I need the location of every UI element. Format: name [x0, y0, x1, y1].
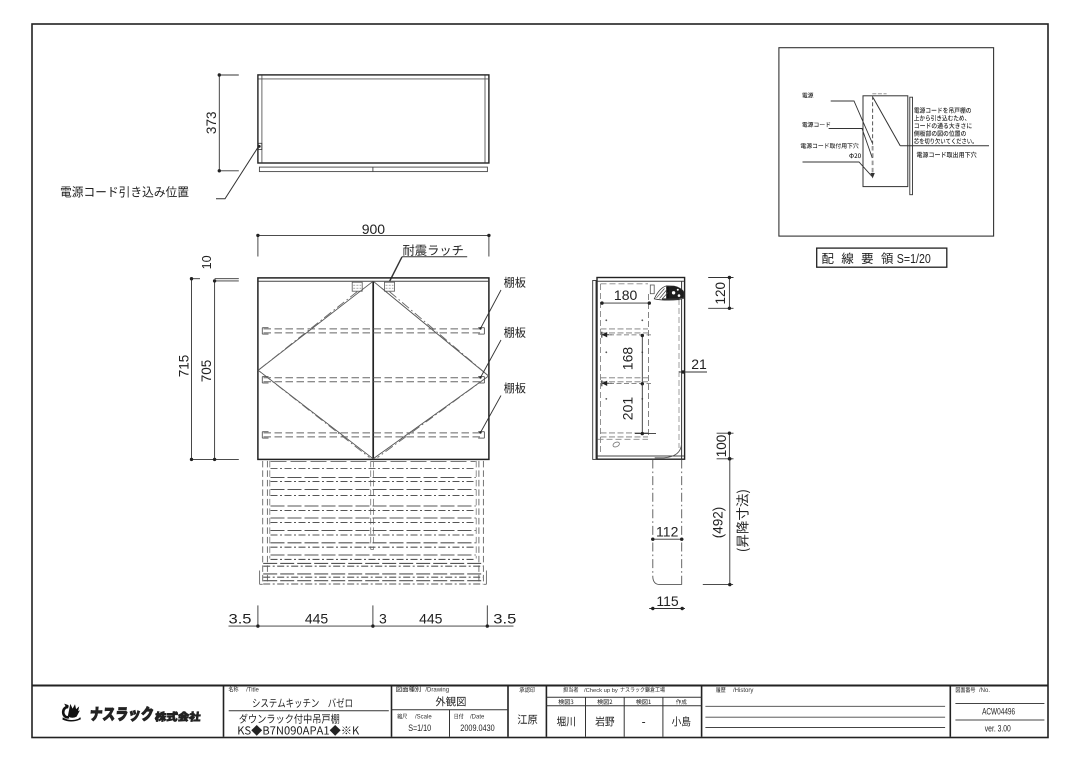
svg-text:180: 180 — [614, 287, 638, 303]
svg-text:715: 715 — [176, 355, 191, 378]
svg-text:/Drawing: /Drawing — [425, 688, 449, 694]
svg-text:/History: /History — [733, 688, 753, 694]
svg-text:705: 705 — [199, 360, 214, 383]
svg-text:3: 3 — [379, 610, 387, 626]
svg-text:3.5: 3.5 — [229, 610, 252, 626]
svg-text:ACW04496: ACW04496 — [982, 707, 1015, 717]
svg-text:445: 445 — [305, 610, 329, 626]
svg-text:/No.: /No. — [979, 688, 990, 694]
svg-text:S=1/20: S=1/20 — [897, 252, 931, 266]
svg-text:168: 168 — [620, 347, 636, 371]
svg-text:21: 21 — [691, 356, 707, 372]
svg-text:120: 120 — [713, 282, 728, 305]
svg-text:/Date: /Date — [470, 715, 485, 721]
svg-text:ver. 3.00: ver. 3.00 — [985, 724, 1011, 734]
svg-text:115: 115 — [656, 593, 679, 609]
svg-text:S=1/10: S=1/10 — [408, 723, 431, 733]
svg-text:/Title: /Title — [246, 688, 259, 694]
svg-text:/Scale: /Scale — [415, 715, 432, 721]
svg-text:201: 201 — [620, 397, 636, 421]
svg-text:2009.0430: 2009.0430 — [460, 723, 494, 733]
svg-text:(492): (492) — [711, 507, 726, 539]
svg-text:-: - — [642, 715, 646, 729]
svg-text:3.5: 3.5 — [493, 610, 516, 626]
svg-text:100: 100 — [714, 435, 729, 458]
svg-text:900: 900 — [362, 221, 386, 237]
svg-text:373: 373 — [204, 112, 219, 135]
svg-text:112: 112 — [656, 524, 679, 540]
svg-text:10: 10 — [200, 255, 214, 269]
svg-text:/Check up by: /Check up by — [584, 688, 618, 694]
svg-text:445: 445 — [419, 610, 443, 626]
